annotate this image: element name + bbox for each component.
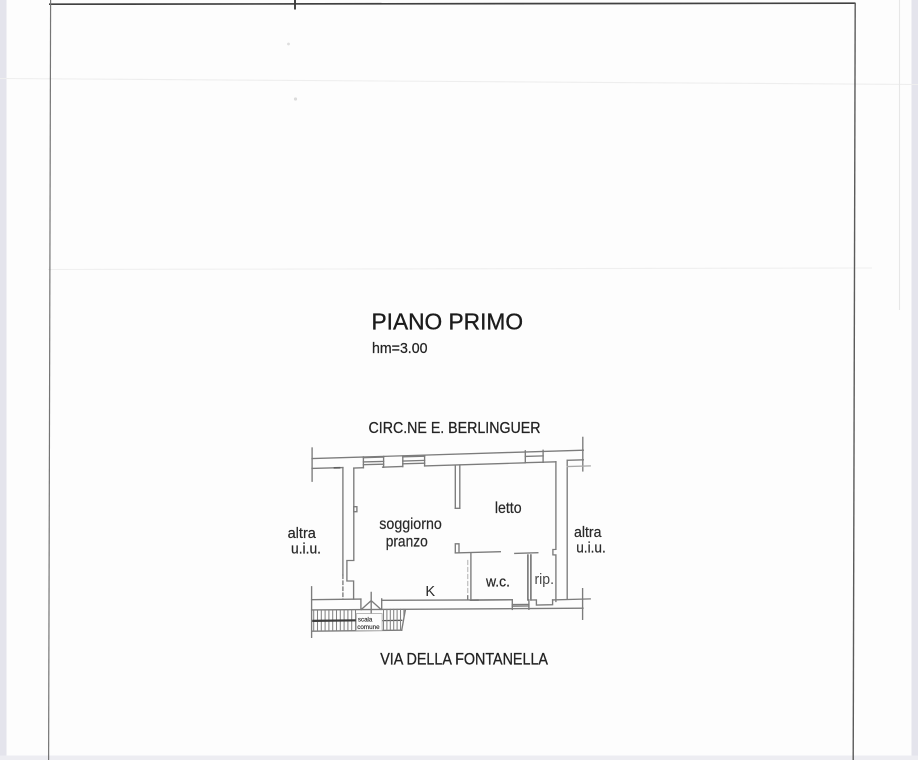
svg-text:comune: comune	[357, 624, 380, 631]
svg-text:scala: scala	[358, 617, 373, 624]
svg-text:u.i.u.: u.i.u.	[576, 540, 606, 557]
svg-text:soggiorno: soggiorno	[379, 516, 442, 533]
svg-text:PIANO PRIMO: PIANO PRIMO	[372, 309, 524, 335]
svg-text:letto: letto	[495, 500, 522, 517]
svg-text:u.i.u.: u.i.u.	[291, 541, 321, 558]
svg-text:altra: altra	[574, 524, 602, 541]
svg-text:w.c.: w.c.	[485, 573, 510, 590]
svg-text:CIRC.NE E. BERLINGUER: CIRC.NE E. BERLINGUER	[369, 420, 541, 437]
svg-text:VIA DELLA FONTANELLA: VIA DELLA FONTANELLA	[380, 651, 548, 669]
svg-text:hm=3.00: hm=3.00	[372, 340, 428, 357]
svg-text:pranzo: pranzo	[386, 533, 428, 550]
svg-text:altra: altra	[288, 525, 317, 542]
svg-text:rip.: rip.	[535, 571, 555, 588]
svg-text:K: K	[425, 584, 435, 600]
